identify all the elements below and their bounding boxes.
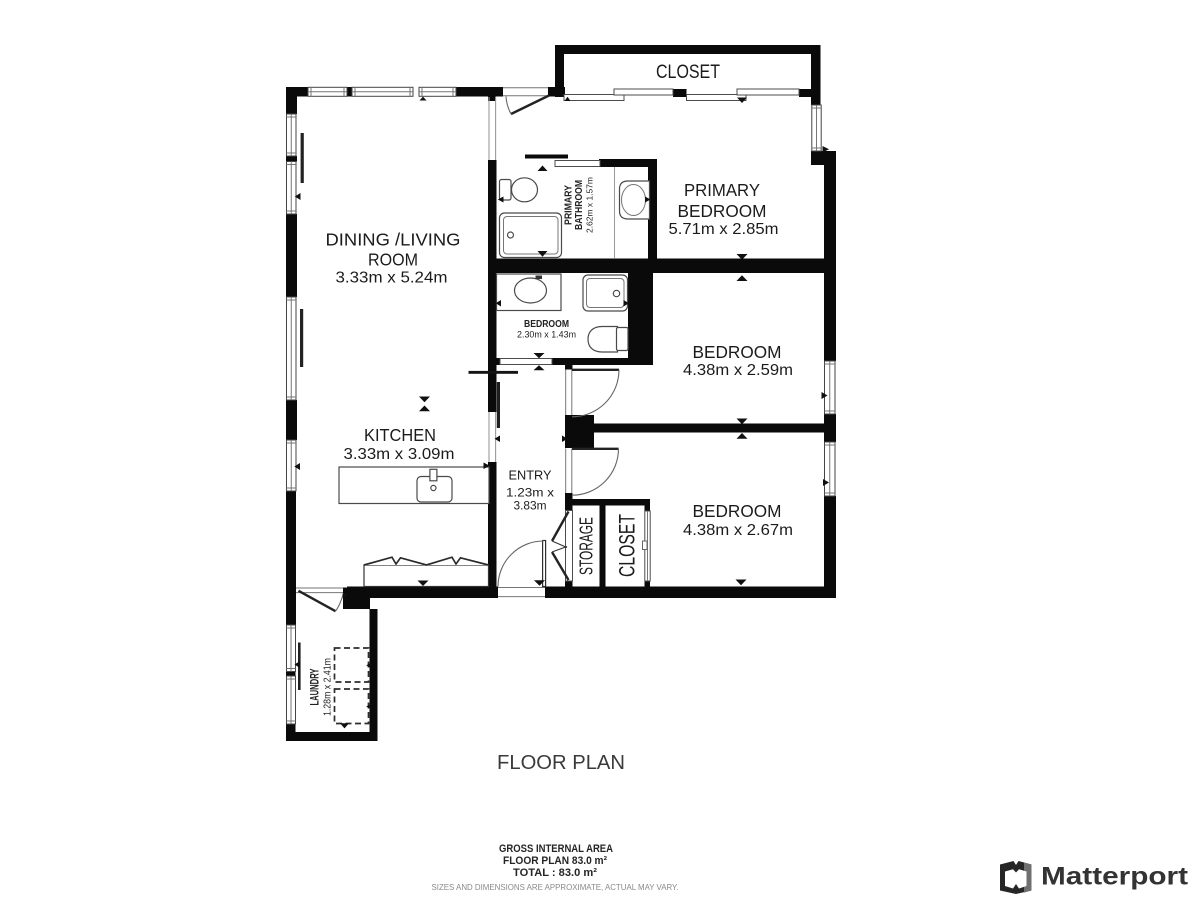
svg-text:LAUNDRY: LAUNDRY [308, 669, 322, 706]
svg-text:DINING /LIVING: DINING /LIVING [326, 229, 461, 249]
svg-text:BEDROOM: BEDROOM [524, 318, 569, 330]
svg-text:4.38m x 2.67m: 4.38m x 2.67m [683, 522, 793, 539]
svg-text:BATHROOM: BATHROOM [573, 180, 585, 230]
svg-text:CLOSET: CLOSET [656, 61, 720, 83]
svg-text:CLOSET: CLOSET [615, 514, 640, 577]
svg-text:STORAGE: STORAGE [577, 517, 597, 575]
svg-text:3.33m x 5.24m: 3.33m x 5.24m [336, 270, 448, 287]
svg-text:KITCHEN: KITCHEN [364, 425, 436, 445]
svg-text:FLOOR PLAN 83.0 m²: FLOOR PLAN 83.0 m² [503, 855, 607, 867]
svg-text:5.71m x 2.85m: 5.71m x 2.85m [669, 221, 779, 238]
svg-text:GROSS INTERNAL AREA: GROSS INTERNAL AREA [499, 843, 613, 855]
svg-text:PRIMARY: PRIMARY [684, 180, 760, 200]
svg-text:SIZES AND DIMENSIONS ARE APPRO: SIZES AND DIMENSIONS ARE APPROXIMATE, AC… [432, 883, 679, 892]
svg-text:ENTRY: ENTRY [509, 469, 553, 483]
svg-text:BEDROOM: BEDROOM [693, 501, 782, 521]
svg-text:BEDROOM: BEDROOM [693, 342, 782, 362]
svg-text:TOTAL : 83.0 m²: TOTAL : 83.0 m² [513, 867, 597, 879]
svg-text:1.28m x 2.41m: 1.28m x 2.41m [323, 658, 334, 716]
svg-text:4.38m x 2.59m: 4.38m x 2.59m [683, 362, 793, 379]
svg-text:2.30m x 1.43m: 2.30m x 1.43m [517, 330, 576, 340]
svg-text:2.62m x 1.57m: 2.62m x 1.57m [585, 177, 595, 233]
svg-text:FLOOR PLAN: FLOOR PLAN [497, 751, 625, 774]
svg-text:Matterport: Matterport [1041, 863, 1189, 891]
svg-text:BEDROOM: BEDROOM [678, 201, 767, 221]
svg-text:3.83m: 3.83m [514, 501, 547, 513]
svg-text:1.23m x: 1.23m x [506, 488, 554, 500]
svg-text:ROOM: ROOM [368, 249, 418, 269]
svg-text:3.33m x 3.09m: 3.33m x 3.09m [344, 446, 455, 463]
